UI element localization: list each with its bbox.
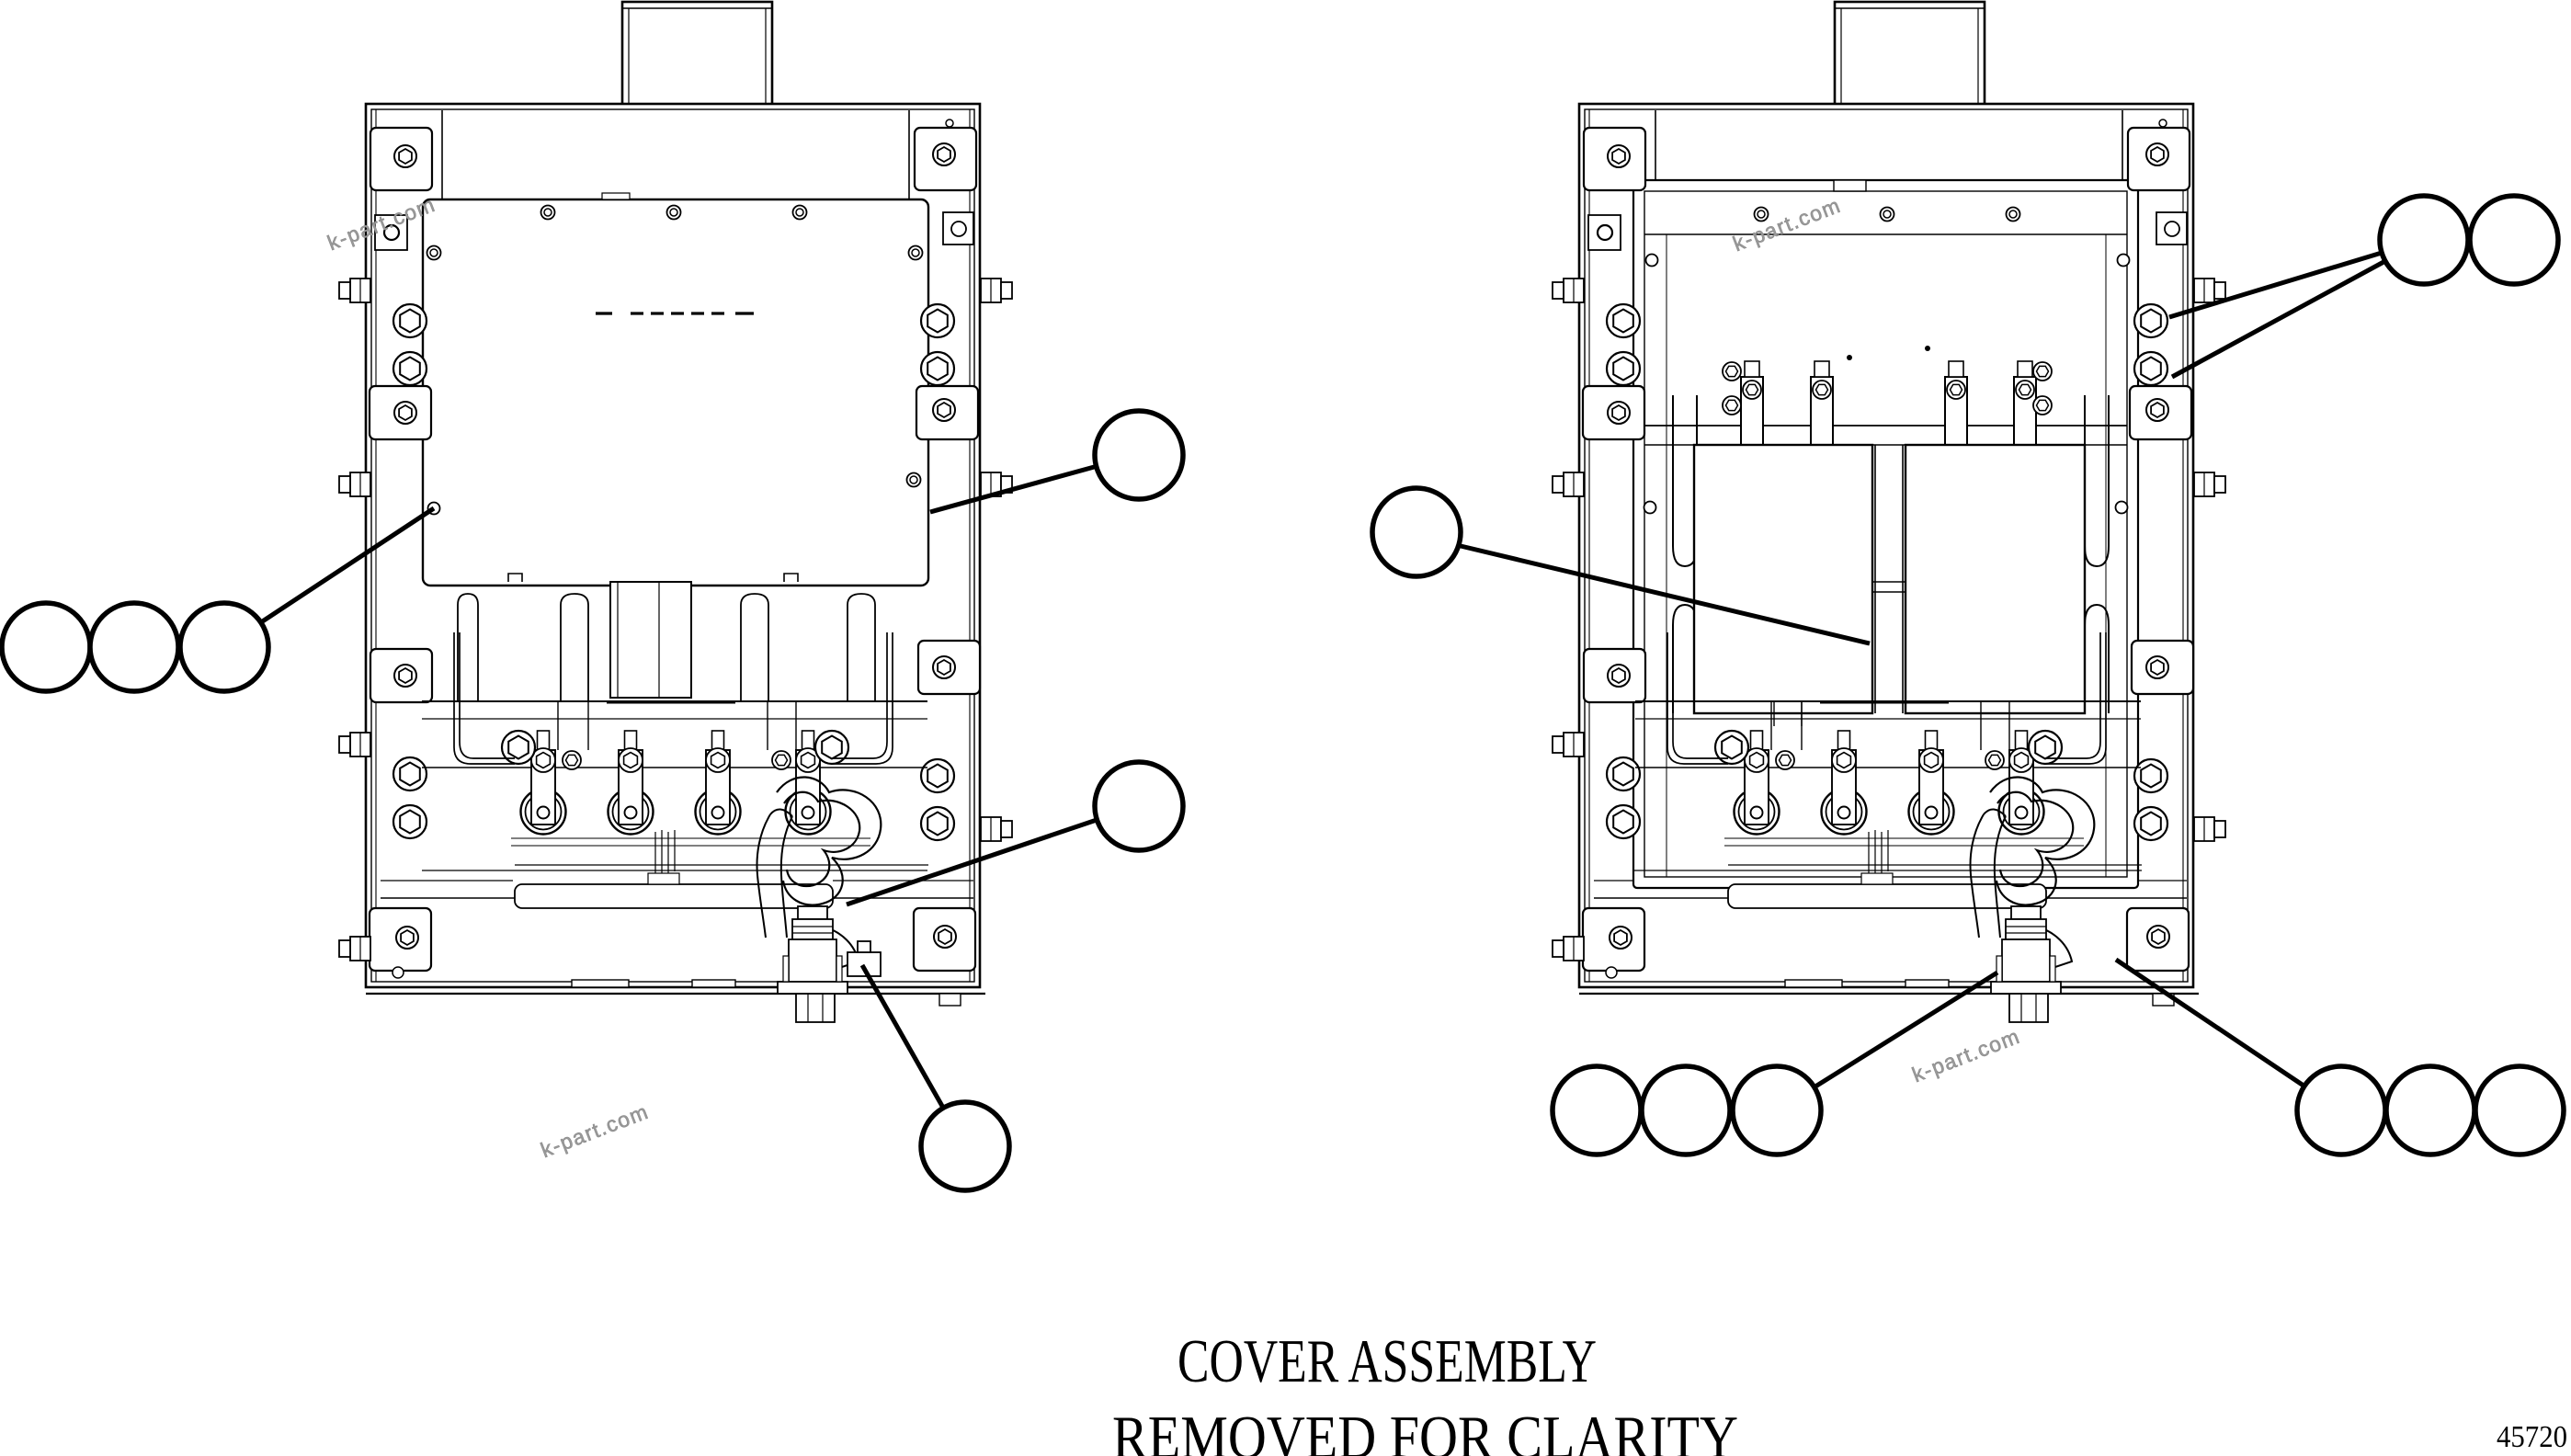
svg-text:COVER ASSEMBLY: COVER ASSEMBLY [1177, 1327, 1597, 1395]
svg-text:REMOVED FOR CLARITY: REMOVED FOR CLARITY [1112, 1404, 1738, 1456]
svg-text:45720: 45720 [2497, 1420, 2567, 1454]
